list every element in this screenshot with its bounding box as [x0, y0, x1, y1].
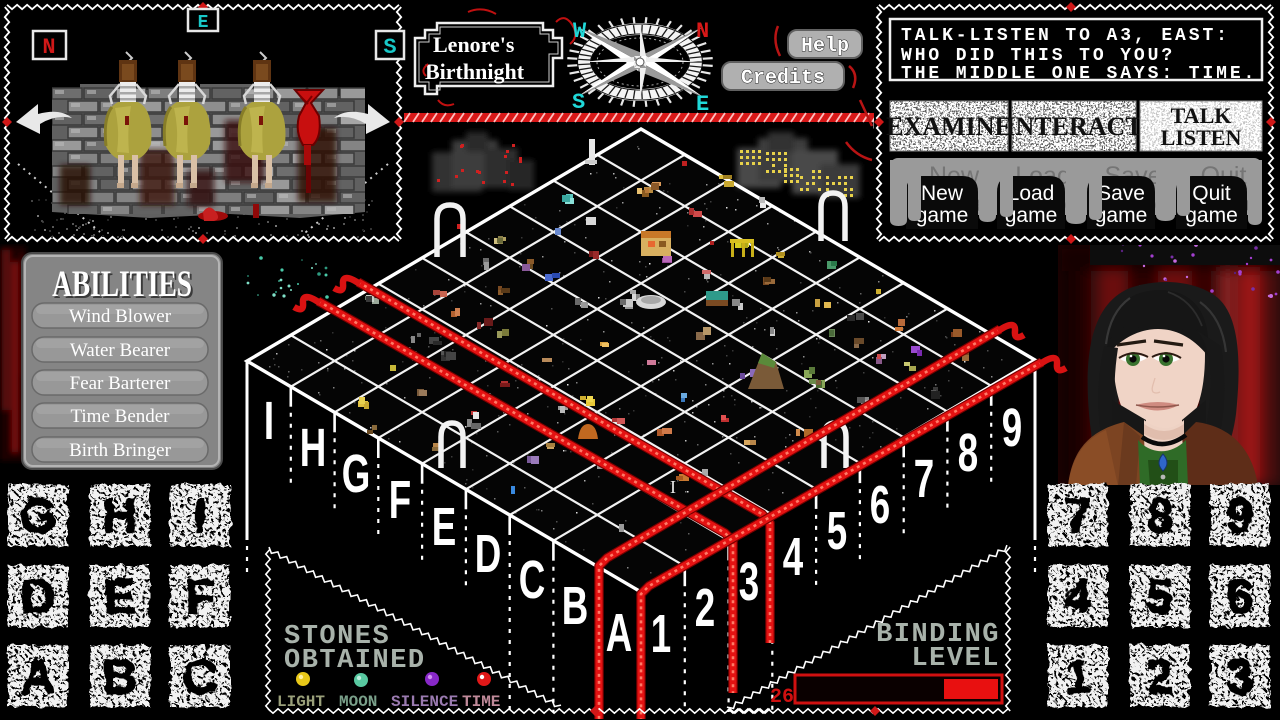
- svg-text:LIGHT: LIGHT: [277, 693, 325, 711]
- svg-text:game: game: [1095, 204, 1148, 227]
- svg-text:I: I: [193, 490, 206, 543]
- svg-text:ABILITIES: ABILITIES: [52, 264, 192, 305]
- svg-text:G: G: [342, 443, 371, 504]
- svg-text:B: B: [103, 651, 138, 704]
- svg-text:D: D: [21, 571, 56, 624]
- svg-text:LEVEL: LEVEL: [911, 644, 1000, 674]
- svg-text:H: H: [103, 490, 138, 543]
- svg-text:G: G: [19, 490, 56, 543]
- svg-text:SILENCE: SILENCE: [391, 693, 458, 711]
- svg-text:I: I: [264, 390, 274, 451]
- svg-text:TIME: TIME: [462, 693, 500, 711]
- svg-text:H: H: [300, 417, 327, 478]
- svg-text:7: 7: [914, 448, 934, 509]
- svg-text:2: 2: [1147, 651, 1174, 704]
- svg-text:E: E: [432, 496, 456, 557]
- svg-text:OBTAINED: OBTAINED: [284, 646, 426, 676]
- svg-text:7: 7: [1065, 490, 1092, 543]
- svg-text:6: 6: [870, 474, 890, 535]
- svg-text:5: 5: [827, 500, 847, 561]
- svg-text:C: C: [183, 651, 218, 704]
- svg-text:4: 4: [1065, 571, 1092, 624]
- svg-text:1: 1: [651, 603, 671, 664]
- svg-text:1: 1: [1065, 651, 1092, 704]
- svg-text:Credits: Credits: [741, 67, 825, 90]
- svg-text:2: 2: [695, 577, 715, 638]
- svg-text:game: game: [916, 204, 969, 227]
- svg-text:9: 9: [1227, 490, 1254, 543]
- svg-text:B: B: [562, 575, 589, 636]
- svg-text:Fear Barterer: Fear Barterer: [70, 373, 171, 394]
- svg-text:New: New: [921, 182, 964, 205]
- svg-text:8: 8: [1147, 490, 1174, 543]
- svg-text:S: S: [383, 35, 396, 60]
- svg-text:N: N: [696, 19, 709, 44]
- svg-text:MOON: MOON: [339, 693, 377, 711]
- svg-text:INTERACT: INTERACT: [1005, 112, 1142, 141]
- svg-text:S: S: [572, 90, 585, 115]
- svg-text:Water Bearer: Water Bearer: [70, 340, 171, 361]
- svg-text:I: I: [670, 477, 676, 497]
- svg-text:Wind Blower: Wind Blower: [69, 306, 172, 327]
- svg-text:TALK-LISTEN TO A3, EAST:: TALK-LISTEN TO A3, EAST:: [901, 26, 1230, 46]
- svg-text:LISTEN: LISTEN: [1161, 125, 1242, 150]
- svg-text:A: A: [21, 651, 56, 704]
- svg-text:Time Bender: Time Bender: [70, 406, 170, 427]
- svg-text:Help: Help: [801, 35, 849, 58]
- svg-text:WHO DID THIS TO YOU?: WHO DID THIS TO YOU?: [901, 46, 1175, 66]
- svg-text:9: 9: [1002, 397, 1022, 458]
- svg-text:Birthnight: Birthnight: [425, 59, 525, 84]
- svg-text:Load: Load: [1008, 182, 1055, 205]
- svg-text:Lenore's: Lenore's: [433, 32, 515, 57]
- svg-text:THE MIDDLE ONE SAYS: TIME.: THE MIDDLE ONE SAYS: TIME.: [901, 64, 1257, 84]
- svg-text:game: game: [1185, 204, 1238, 227]
- svg-text:F: F: [389, 469, 411, 530]
- svg-text:26: 26: [770, 686, 794, 709]
- svg-text:3: 3: [739, 551, 759, 612]
- svg-text:EXAMINE: EXAMINE: [886, 112, 1012, 141]
- svg-text:A: A: [606, 602, 633, 663]
- svg-text:3: 3: [1227, 651, 1254, 704]
- svg-text:Birth Bringer: Birth Bringer: [69, 440, 172, 461]
- svg-text:W: W: [573, 19, 587, 44]
- svg-text:6: 6: [1227, 571, 1254, 624]
- svg-text:E: E: [198, 13, 209, 33]
- svg-text:4: 4: [783, 526, 804, 587]
- svg-text:Quit: Quit: [1192, 182, 1231, 205]
- svg-text:Save: Save: [1097, 182, 1145, 205]
- svg-text:C: C: [519, 549, 546, 610]
- svg-text:8: 8: [958, 422, 978, 483]
- svg-text:D: D: [475, 523, 502, 584]
- svg-text:E: E: [696, 92, 709, 117]
- svg-text:5: 5: [1147, 571, 1174, 624]
- svg-text:N: N: [42, 35, 55, 60]
- svg-text:E: E: [104, 571, 136, 624]
- svg-text:F: F: [185, 571, 214, 624]
